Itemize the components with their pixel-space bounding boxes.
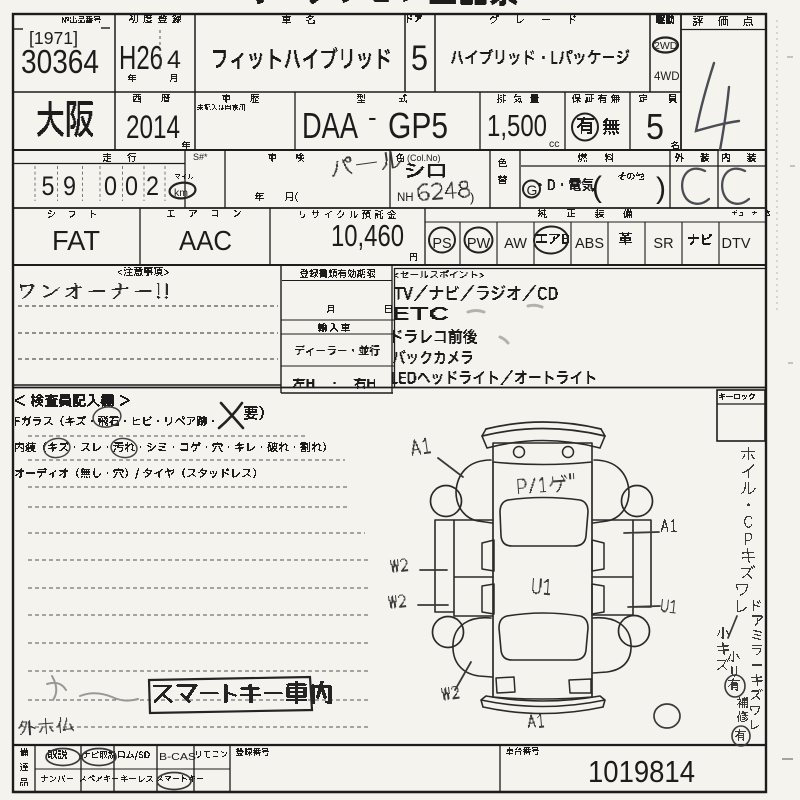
- svg-text:SR: SR: [653, 236, 673, 252]
- svg-text:): ): [470, 190, 474, 205]
- svg-text:-: -: [368, 102, 377, 132]
- svg-text:0: 0: [125, 171, 138, 201]
- svg-text:(Col.No): (Col.No): [407, 153, 441, 163]
- svg-text:10,460: 10,460: [331, 218, 404, 253]
- svg-text:4WD: 4WD: [654, 71, 680, 83]
- svg-text:2: 2: [146, 171, 159, 201]
- svg-text:(: (: [592, 171, 602, 204]
- svg-text:ABS: ABS: [575, 236, 604, 252]
- svg-text:S#*: S#*: [193, 152, 208, 162]
- svg-text:5: 5: [42, 171, 55, 201]
- svg-text:4: 4: [167, 46, 181, 74]
- svg-text:B-CAS: B-CAS: [159, 752, 196, 763]
- svg-text:1,500: 1,500: [487, 108, 547, 143]
- svg-text:30364: 30364: [21, 43, 99, 80]
- svg-text:GP5: GP5: [388, 105, 448, 146]
- svg-text:DAA: DAA: [302, 105, 358, 146]
- svg-text:9: 9: [63, 171, 76, 201]
- svg-text:2014: 2014: [126, 109, 180, 145]
- svg-text:NH: NH: [397, 192, 414, 204]
- svg-text:5: 5: [411, 39, 428, 78]
- svg-text:1019814: 1019814: [588, 754, 695, 789]
- svg-text:cc: cc: [549, 138, 560, 150]
- svg-text:AW: AW: [504, 236, 527, 252]
- svg-text:AAC: AAC: [179, 225, 232, 256]
- svg-text:FAT: FAT: [52, 225, 100, 256]
- svg-text:DTV: DTV: [722, 236, 751, 252]
- svg-text:): ): [656, 172, 666, 205]
- svg-text:H26: H26: [119, 39, 163, 76]
- svg-text:5: 5: [646, 106, 664, 147]
- svg-text:0: 0: [104, 171, 117, 201]
